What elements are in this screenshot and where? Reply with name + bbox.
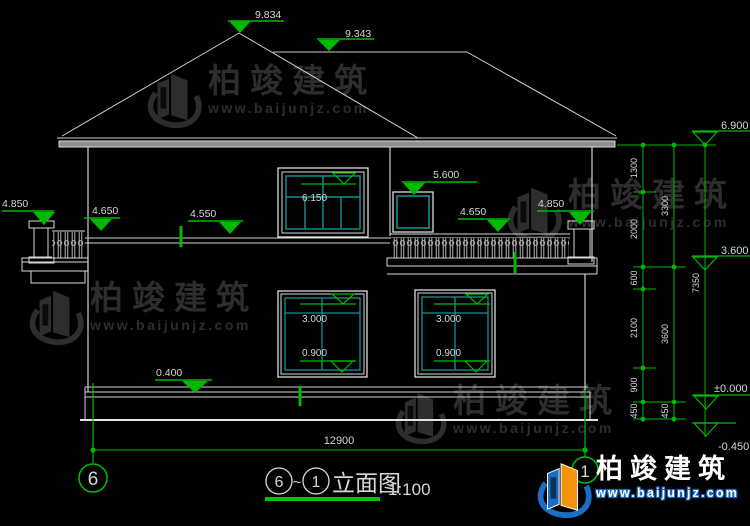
marker-label: 5.600 bbox=[433, 169, 459, 181]
marker-window-top-label: 3.000 bbox=[436, 314, 461, 325]
marker-window-sill-label: 0.900 bbox=[436, 348, 461, 359]
marker-window-sill: 0.900 bbox=[300, 348, 356, 372]
marker-label: 9.834 bbox=[255, 9, 281, 21]
elevation-triangle-icon bbox=[318, 40, 340, 51]
marker-parapet-left: 4.650 bbox=[84, 205, 120, 231]
marker-ground: ±0.000 bbox=[692, 383, 750, 409]
bottom-dimension: 12900 bbox=[90, 435, 587, 453]
dim-label: 900 bbox=[629, 377, 639, 392]
right-dimension-chains: 1300 2000 600 2100 900 450 3300 3600 450… bbox=[617, 143, 716, 437]
marker-label: ±0.000 bbox=[714, 383, 748, 395]
window-2: 3.000 0.900 bbox=[415, 290, 495, 377]
title-axis-left: 6 bbox=[275, 474, 284, 491]
elevation-triangle-icon bbox=[332, 294, 354, 304]
brand-logo-text: 柏竣建筑 bbox=[596, 454, 739, 484]
stair-window bbox=[393, 192, 433, 232]
elevation-triangle-icon bbox=[569, 212, 591, 225]
left-balcony bbox=[22, 221, 88, 283]
marker-label: 4.650 bbox=[460, 206, 486, 218]
dim-label: 450 bbox=[629, 403, 639, 418]
balcony-slab bbox=[387, 258, 597, 266]
marker-floor2-right: 3.600 bbox=[692, 245, 750, 270]
balusters bbox=[52, 232, 85, 258]
balcony-slab bbox=[22, 258, 88, 271]
marker-label: 4.850 bbox=[538, 198, 564, 210]
baluster-post-shaft bbox=[34, 228, 48, 257]
marker-label: 3.600 bbox=[721, 245, 749, 257]
window-1: 3.000 0.900 bbox=[278, 291, 367, 377]
dim-label: 7350 bbox=[691, 273, 701, 293]
marker-site: -0.450 bbox=[692, 423, 749, 453]
marker-window2-top: 5.600 bbox=[402, 169, 477, 195]
title-tilde: ~ bbox=[293, 474, 302, 491]
brand-logo-url: www.baijunjz.com bbox=[596, 486, 739, 500]
marker-label: 6.900 bbox=[721, 120, 749, 132]
brand-logo: 柏竣建筑 www.baijunjz.com bbox=[534, 454, 739, 518]
elevation-triangle-icon bbox=[487, 220, 509, 232]
marker-door-top: 6.150 bbox=[301, 173, 356, 204]
marker-plinth: 0.400 bbox=[155, 367, 212, 393]
marker-ridge-main: 9.834 bbox=[228, 9, 284, 33]
marker-window-sill: 0.900 bbox=[434, 348, 490, 372]
baluster-post-shaft bbox=[574, 229, 590, 257]
right-balcony bbox=[387, 221, 597, 274]
balcony-fascia bbox=[31, 271, 85, 283]
floor-slab-band bbox=[83, 238, 390, 243]
drawing-title: 6 ~ 1 立面图 1:100 bbox=[265, 468, 431, 501]
elevation-triangle-icon bbox=[403, 183, 425, 195]
marker-label: 9.343 bbox=[345, 28, 371, 40]
title-axis-right: 1 bbox=[312, 474, 321, 491]
plinth-and-ground bbox=[80, 387, 598, 420]
dim-label-width: 12900 bbox=[324, 435, 355, 447]
cad-elevation-screenshot: 柏竣建筑 www.baijunjz.com 柏竣建筑 www.baijunjz.… bbox=[0, 0, 750, 526]
elevation-triangle-icon bbox=[33, 212, 55, 225]
elevation-triangle-icon bbox=[694, 396, 718, 409]
title-underline bbox=[265, 497, 380, 501]
marker-label: 0.400 bbox=[156, 367, 182, 379]
marker-door-top-label: 6.150 bbox=[302, 193, 327, 204]
elevation-triangle-icon bbox=[229, 21, 251, 33]
grid-axis-left: 6 bbox=[79, 383, 107, 492]
marker-eave: 6.900 bbox=[692, 120, 750, 145]
marker-label: 4.650 bbox=[92, 205, 118, 217]
dim-label: 2000 bbox=[629, 219, 639, 239]
elevation-triangle-icon bbox=[694, 423, 718, 436]
marker-floor2-left: 4.550 bbox=[188, 208, 243, 234]
roof-outline bbox=[62, 33, 616, 138]
title-scale: 1:100 bbox=[388, 480, 431, 499]
marker-window-top: 3.000 bbox=[434, 294, 490, 325]
elevation-drawing: 6.150 3.000 0.900 bbox=[0, 0, 750, 526]
marker-label: 4.550 bbox=[190, 208, 216, 220]
dim-label: 1300 bbox=[629, 158, 639, 178]
dim-label: 3600 bbox=[660, 324, 670, 344]
balcony-door: 6.150 bbox=[278, 168, 368, 237]
marker-window-top-label: 3.000 bbox=[302, 314, 327, 325]
facade-markers: 9.834 9.343 4.850 4.650 4.550 bbox=[2, 9, 594, 393]
marker-ridge-secondary: 9.343 bbox=[317, 28, 374, 51]
dim-label: 450 bbox=[660, 403, 670, 418]
balusters bbox=[391, 238, 569, 258]
marker-label: 4.850 bbox=[2, 198, 28, 210]
baluster-post-cap bbox=[29, 221, 54, 228]
dim-label: 3300 bbox=[660, 196, 670, 216]
dim-label: 600 bbox=[629, 270, 639, 285]
grid-bubble-left-label: 6 bbox=[88, 469, 99, 490]
brand-logo-icon bbox=[534, 454, 592, 518]
elevation-triangle-icon bbox=[466, 294, 488, 304]
marker-label: -0.450 bbox=[718, 441, 749, 453]
eave-fascia bbox=[57, 138, 617, 147]
elevation-triangle-icon bbox=[333, 173, 355, 184]
marker-window-sill-label: 0.900 bbox=[302, 348, 327, 359]
elevation-triangle-icon bbox=[90, 219, 112, 231]
dim-label: 2100 bbox=[629, 318, 639, 338]
marker-parapet-right: 4.650 bbox=[458, 206, 510, 232]
elevation-triangle-icon bbox=[219, 222, 241, 234]
